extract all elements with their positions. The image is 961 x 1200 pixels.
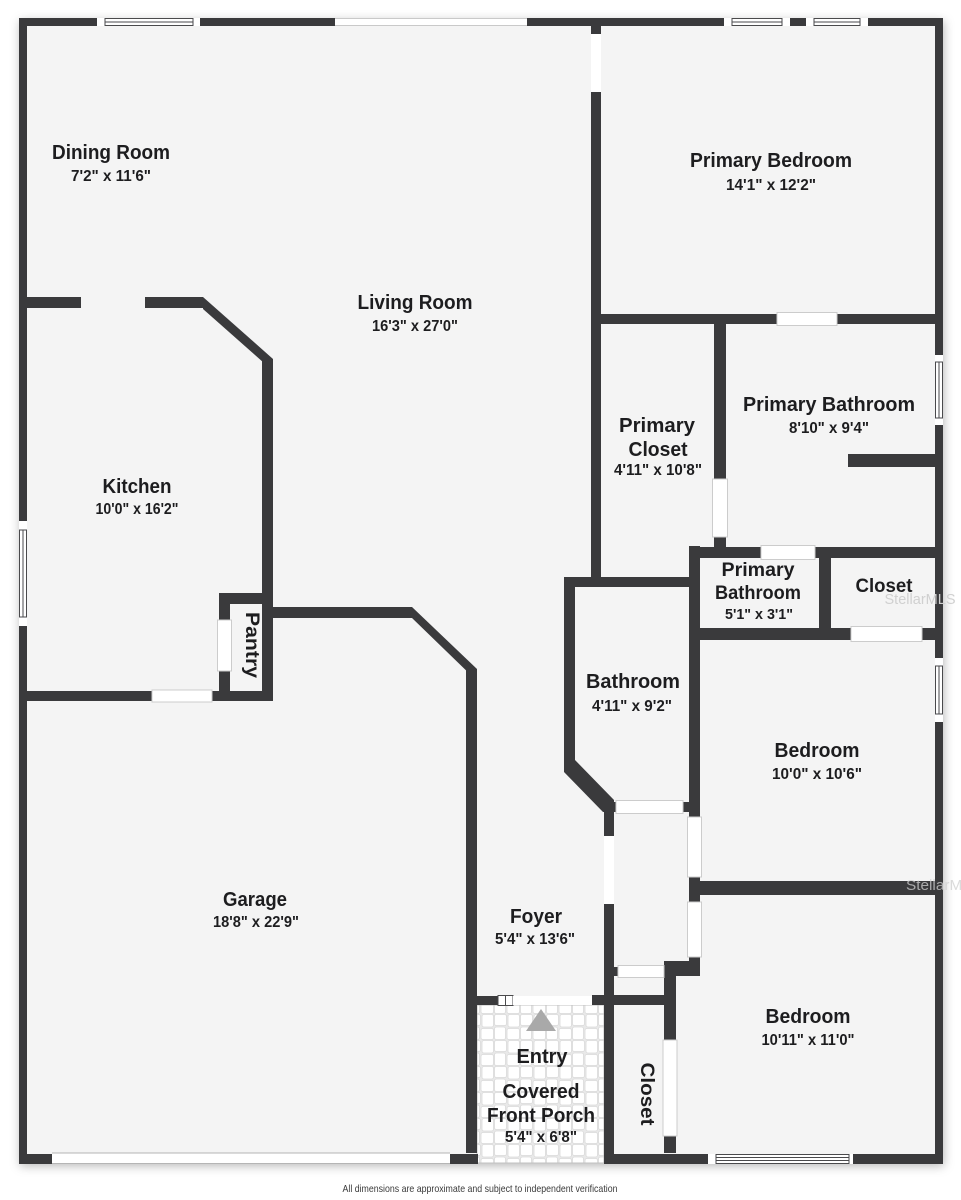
svg-text:Covered: Covered — [503, 1081, 580, 1103]
svg-text:5'4" x 6'8": 5'4" x 6'8" — [505, 1129, 577, 1146]
svg-text:Closet: Closet — [636, 1063, 657, 1127]
svg-text:5'1" x 3'1": 5'1" x 3'1" — [725, 606, 793, 623]
svg-text:7'2" x 11'6": 7'2" x 11'6" — [71, 168, 151, 185]
svg-text:Bathroom: Bathroom — [586, 671, 680, 693]
svg-text:Primary Bedroom: Primary Bedroom — [690, 150, 852, 172]
svg-text:Foyer: Foyer — [510, 906, 562, 928]
svg-text:8'10" x 9'4": 8'10" x 9'4" — [789, 420, 869, 437]
svg-text:16'3" x 27'0": 16'3" x 27'0" — [372, 318, 458, 335]
svg-text:Primary Bathroom: Primary Bathroom — [743, 394, 915, 416]
svg-text:Garage: Garage — [223, 889, 287, 911]
svg-text:Entry: Entry — [517, 1046, 569, 1068]
svg-text:Primary: Primary — [722, 560, 795, 581]
svg-text:10'0" x 16'2": 10'0" x 16'2" — [96, 501, 179, 518]
svg-text:Front Porch: Front Porch — [487, 1105, 595, 1127]
svg-text:Closet: Closet — [629, 439, 688, 461]
svg-text:All dimensions are approximate: All dimensions are approximate and subje… — [343, 1183, 618, 1195]
svg-text:5'4" x 13'6": 5'4" x 13'6" — [495, 931, 575, 948]
svg-text:10'0" x 10'6": 10'0" x 10'6" — [772, 766, 862, 783]
svg-text:Bathroom: Bathroom — [715, 583, 801, 604]
svg-text:14'1" x 12'2": 14'1" x 12'2" — [726, 177, 816, 194]
svg-text:Bedroom: Bedroom — [775, 740, 860, 762]
svg-text:Dining Room: Dining Room — [52, 142, 170, 164]
svg-text:Primary: Primary — [619, 415, 696, 437]
svg-text:Pantry: Pantry — [241, 612, 262, 678]
svg-text:Bedroom: Bedroom — [766, 1006, 851, 1028]
svg-text:StellarMLS: StellarMLS — [906, 877, 961, 894]
svg-text:4'11" x 10'8": 4'11" x 10'8" — [614, 462, 702, 479]
svg-text:18'8" x 22'9": 18'8" x 22'9" — [213, 914, 299, 931]
svg-text:Living Room: Living Room — [358, 292, 473, 314]
svg-text:10'11" x 11'0": 10'11" x 11'0" — [762, 1032, 855, 1049]
svg-text:StellarMLS: StellarMLS — [885, 591, 956, 608]
svg-text:Kitchen: Kitchen — [103, 476, 172, 498]
svg-text:4'11" x 9'2": 4'11" x 9'2" — [592, 698, 672, 715]
